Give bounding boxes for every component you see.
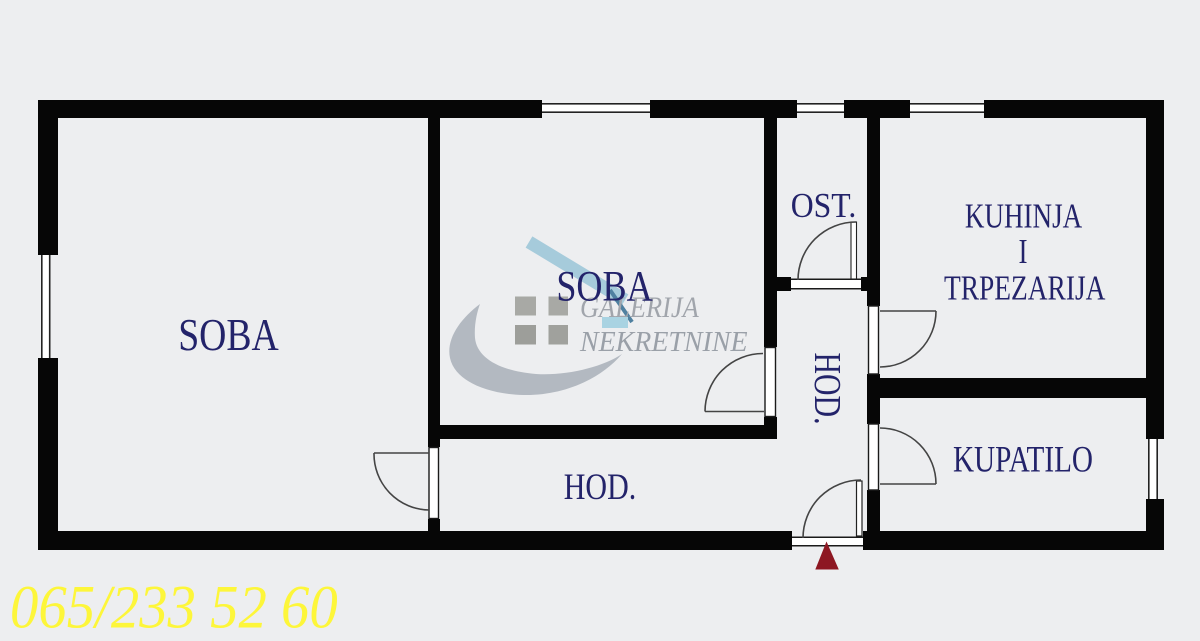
svg-text:065/233 52 60: 065/233 52 60	[10, 574, 338, 641]
svg-text:KUHINJA: KUHINJA	[965, 196, 1083, 235]
svg-text:SOBA: SOBA	[556, 263, 653, 311]
svg-text:NEKRETNINE: NEKRETNINE	[579, 327, 748, 358]
svg-text:TRPEZARIJA: TRPEZARIJA	[944, 269, 1106, 308]
svg-text:I: I	[1018, 232, 1027, 271]
svg-text:HOD.: HOD.	[806, 352, 847, 424]
svg-text:SOBA: SOBA	[178, 311, 279, 361]
svg-text:KUPATILO: KUPATILO	[953, 441, 1093, 481]
svg-text:OST.: OST.	[791, 187, 856, 226]
svg-text:HOD.: HOD.	[564, 467, 636, 508]
